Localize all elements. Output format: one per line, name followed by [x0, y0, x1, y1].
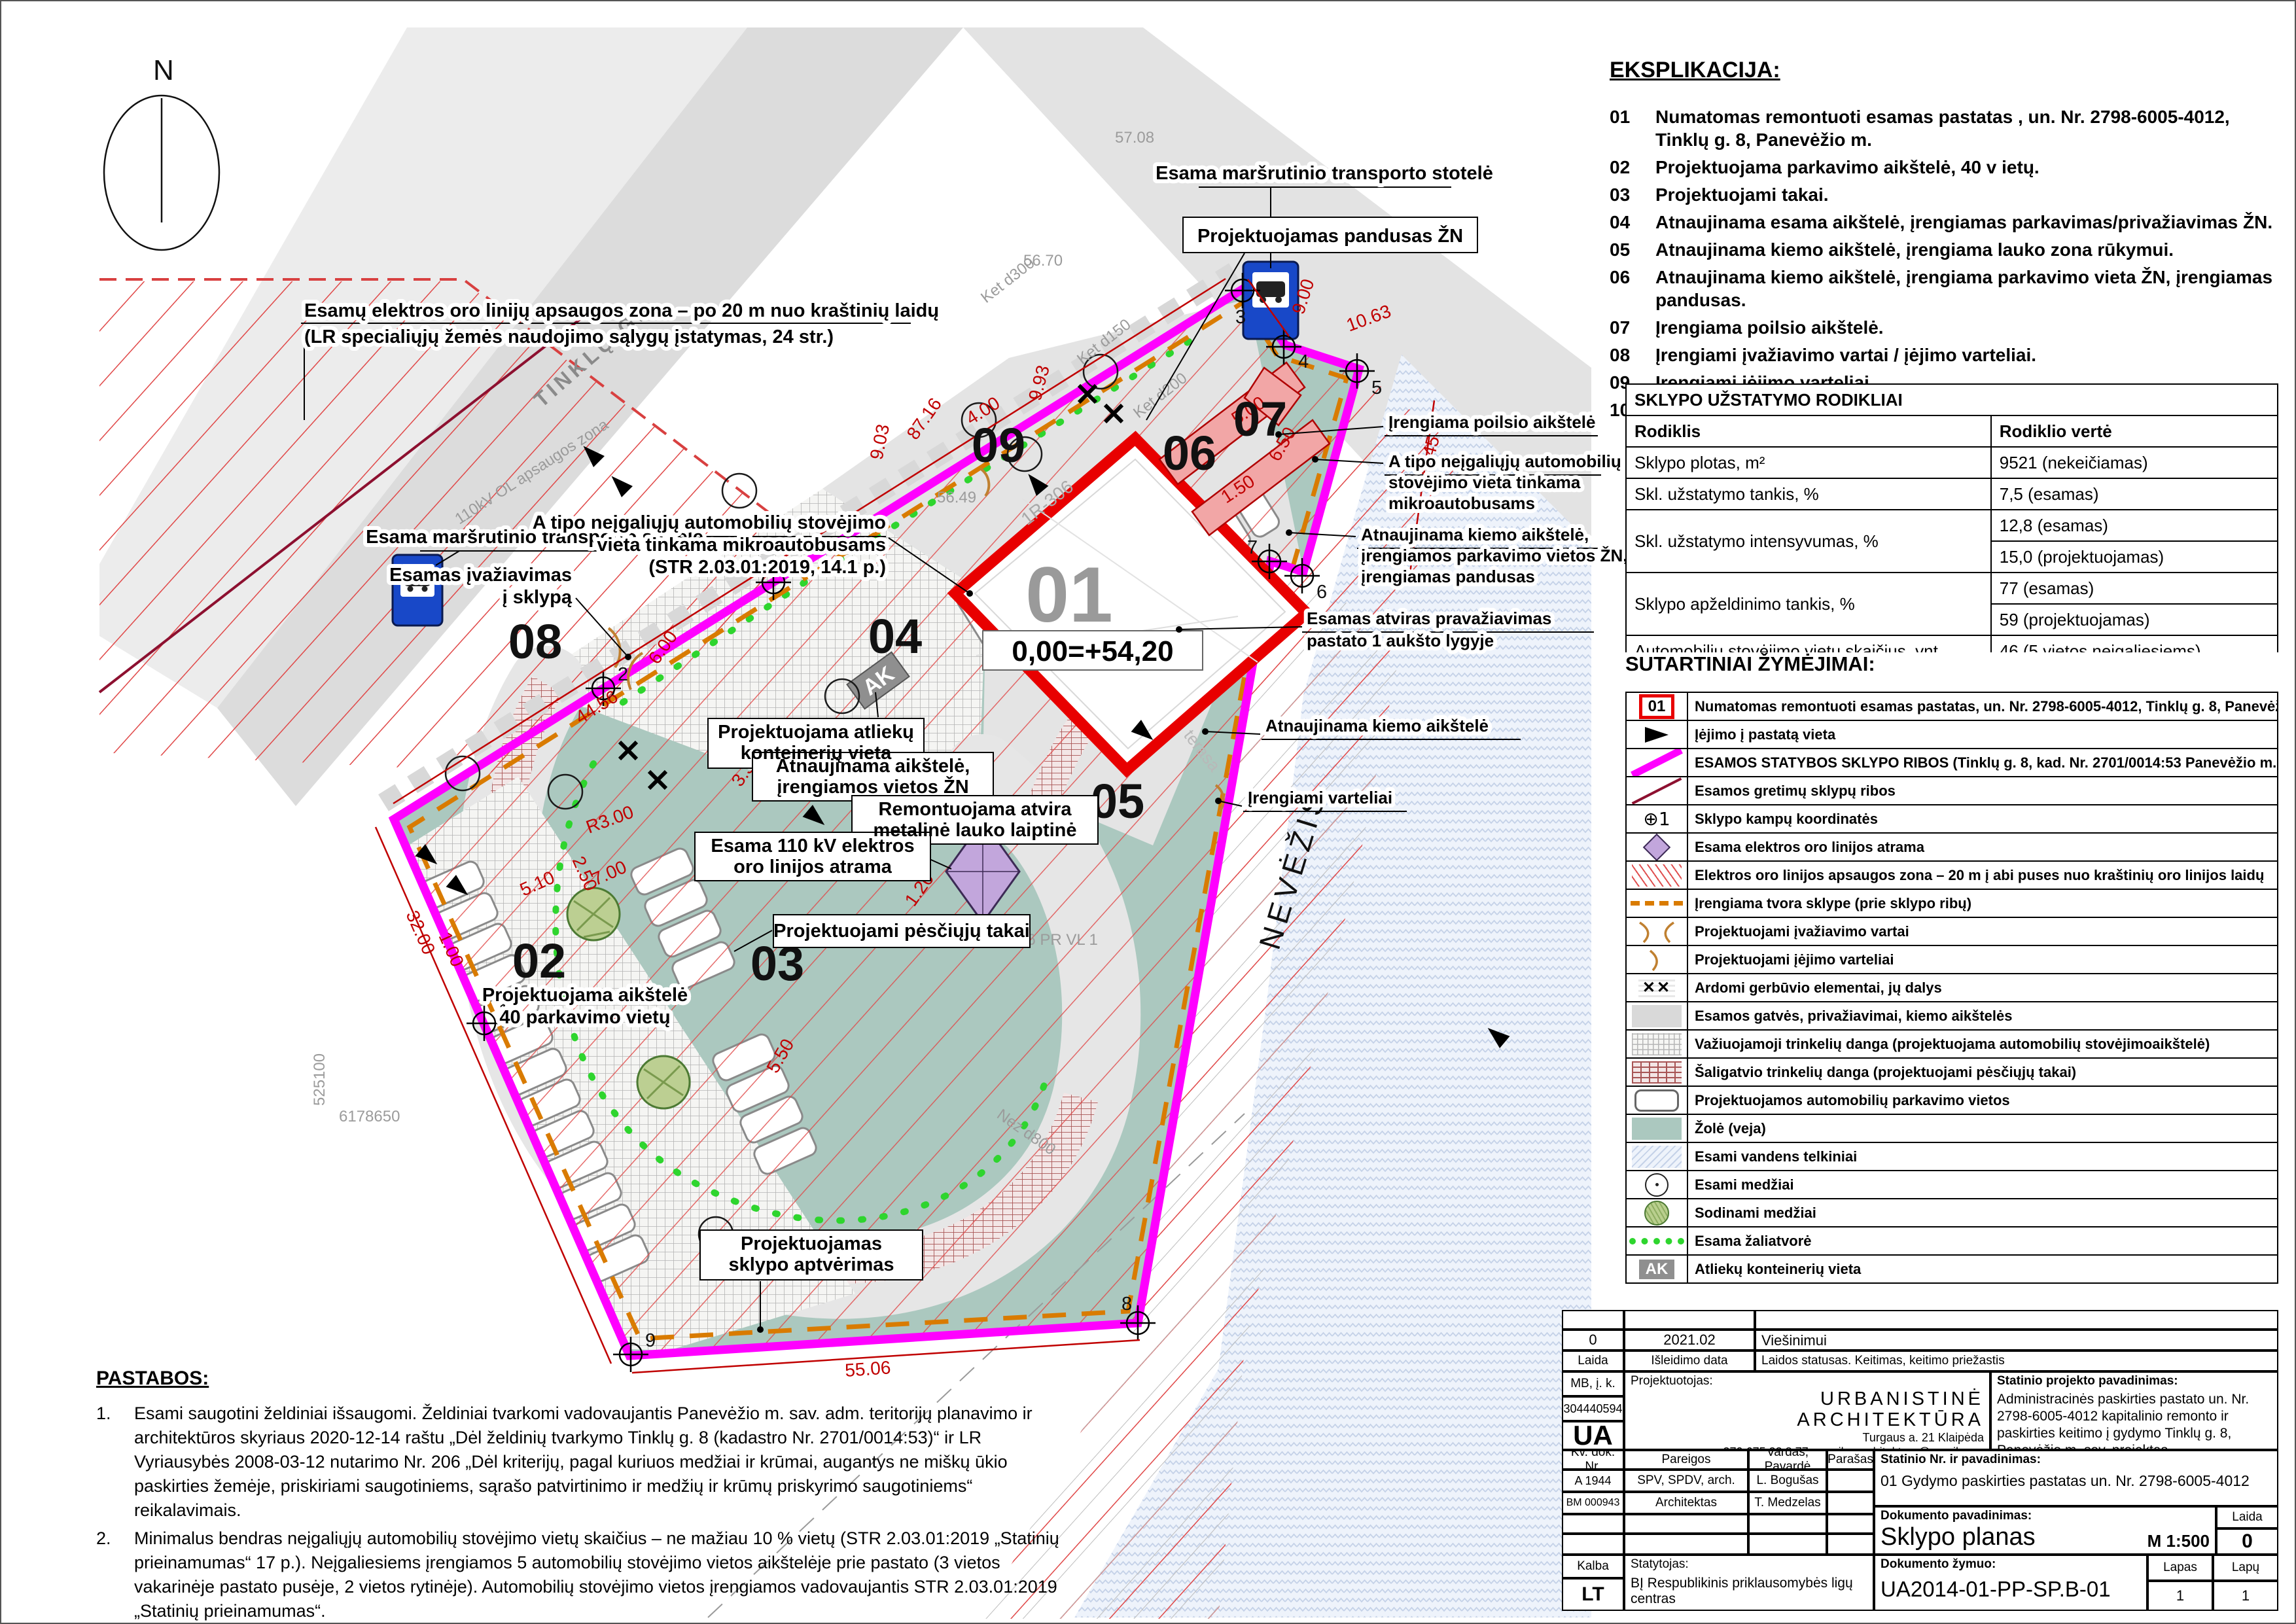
explication-item: 06Atnaujinama kiemo aikštelė, įrengiama … — [1610, 266, 2280, 311]
document-code-value: UA2014-01-PP-SP.B-01 — [1881, 1577, 2141, 1602]
legend-row: Projektuojamos automobilių parkavimo vie… — [1625, 1087, 2278, 1115]
legend-row: Įrengiama tvora sklype (prie sklypo ribų… — [1625, 890, 2278, 918]
empty-cell — [1624, 1514, 1748, 1534]
document-name-label: Dokumento pavadinimas: — [1881, 1509, 2210, 1523]
site-indicators-table: SKLYPO UŽSTATYMO RODIKLIAI RodiklisRodik… — [1625, 383, 2278, 667]
svg-text:Įrengiama poilsio aikštelė: Įrengiama poilsio aikštelė — [1388, 412, 1595, 432]
empty-cell — [1827, 1514, 1874, 1534]
empty-cell — [1624, 1534, 1748, 1555]
project-name-value: Administracinės paskirties pastato un. N… — [1997, 1391, 2272, 1450]
svg-text:Esama maršrutinio transporto s: Esama maršrutinio transporto stotelė — [1156, 163, 1493, 184]
company-address: Turgaus a. 21 Klaipėda — [1631, 1430, 1984, 1445]
legend-row: AKAtliekų konteinerių vieta — [1625, 1256, 2278, 1284]
legend-row: Elektros oro linijos apsaugos zona – 20 … — [1625, 862, 2278, 890]
svg-text:56.70: 56.70 — [1023, 252, 1063, 270]
rev-cell — [1624, 1310, 1755, 1330]
svg-text:07: 07 — [1233, 392, 1287, 446]
note-text: Esami saugotini želdiniai išsaugomi. Žel… — [134, 1402, 1061, 1523]
item-number: 01 — [1610, 105, 1645, 151]
legend-row: 01Numatomas remontuoti esamas pastatas, … — [1625, 692, 2278, 721]
svg-text:06: 06 — [1163, 426, 1216, 480]
structure-name-cell: Statinio Nr. ir pavadinimas: 01 Gydymo p… — [1874, 1450, 2278, 1506]
document-name-cell: Dokumento pavadinimas: Sklypo planas M 1… — [1874, 1506, 2216, 1555]
demolition-icon: ✕✕ — [1638, 978, 1675, 997]
revision-date-label: Išleidimo data — [1624, 1350, 1755, 1371]
item-number: 05 — [1610, 238, 1645, 261]
structure-name-label: Statinio Nr. ir pavadinimas: — [1881, 1453, 2272, 1467]
paver-driveway-icon — [1632, 1033, 1682, 1055]
svg-text:Projektuojama aikštelė: Projektuojama aikštelė — [482, 985, 688, 1006]
person-position: Architektas — [1624, 1492, 1748, 1514]
legend-label: ESAMOS STATYBOS SKLYPO RIBOS (Tinklų g. … — [1688, 754, 2277, 771]
col-header: Rodiklio vertė — [1991, 415, 2278, 447]
svg-text:Atnaujinama aikštelė,: Atnaujinama aikštelė, — [776, 756, 970, 777]
legend-label: Įėjimo į pastatą vieta — [1688, 726, 2277, 743]
svg-text:Atnaujinama kiemo aikštelė,: Atnaujinama kiemo aikštelė, — [1361, 525, 1589, 544]
svg-text:(LR specialiųjų žemės naudojim: (LR specialiųjų žemės naudojimo sąlygų į… — [304, 327, 834, 347]
revision-number: 0 — [1562, 1330, 1624, 1350]
person-doc-nr: BM 000943 — [1562, 1492, 1624, 1514]
indicator-label: Skl. užstatymo tankis, % — [1626, 478, 1991, 510]
waste-container-icon: AK — [1639, 1260, 1675, 1279]
svg-text:mikroautobusams: mikroautobusams — [1388, 493, 1535, 513]
svg-text:6178650: 6178650 — [339, 1108, 400, 1125]
item-number: 04 — [1610, 211, 1645, 234]
parking-spot-icon — [1634, 1089, 1679, 1112]
legend-row: Projektuojami įvažiavimo vartai — [1625, 918, 2278, 946]
item-text: Projektuojami takai. — [1655, 183, 1829, 206]
note-item: 1.Esami saugotini želdiniai išsaugomi. Ž… — [96, 1402, 1061, 1523]
legend-row: Projektuojami įėjimo varteliai — [1625, 946, 2278, 974]
company-name-2: ARCHITEKTŪRA — [1631, 1409, 1984, 1430]
language-value: LT — [1562, 1578, 1624, 1611]
rev-cell — [1755, 1310, 2278, 1330]
svg-text:Remontuojama atvira: Remontuojama atvira — [879, 799, 1072, 820]
legend-row: ESAMOS STATYBOS SKLYPO RIBOS (Tinklų g. … — [1625, 749, 2278, 777]
explication-item: 01Numatomas remontuoti esamas pastatas ,… — [1610, 105, 2280, 151]
item-text: Atnaujinama kiemo aikštelė, įrengiama pa… — [1655, 266, 2280, 311]
client-label: Statytojas: — [1631, 1557, 1867, 1572]
legend-row: Esami medžiai — [1625, 1171, 2278, 1199]
revision-col-label: Laida — [2216, 1506, 2278, 1528]
note-number: 2. — [96, 1527, 122, 1623]
svg-text:8: 8 — [1122, 1294, 1132, 1315]
building-01-icon: 01 — [1639, 694, 1675, 719]
col-header: Rodiklis — [1626, 415, 1991, 447]
indicator-value: 12,8 (esamas) — [1991, 510, 2278, 541]
project-name-cell: Statinio projekto pavadinimas: Administr… — [1990, 1371, 2278, 1450]
legend-label: Esami vandens telkiniai — [1688, 1148, 2277, 1165]
svg-text:40 parkavimo vietų: 40 parkavimo vietų — [499, 1007, 670, 1028]
notes-panel: PASTABOS: 1.Esami saugotini želdiniai iš… — [96, 1368, 1061, 1624]
item-number: 07 — [1610, 316, 1645, 339]
item-number: 02 — [1610, 156, 1645, 179]
building-number: 01 — [1025, 551, 1112, 639]
person-position: SPV, SPDV, arch. — [1624, 1470, 1748, 1492]
legend-label: Atliekų konteinerių vieta — [1688, 1261, 2277, 1278]
svg-text:vieta tinkama mikroautobusams: vieta tinkama mikroautobusams — [597, 535, 886, 556]
legend-row: Esami vandens telkiniai — [1625, 1143, 2278, 1171]
document-code-cell: Dokumento žymuo: UA2014-01-PP-SP.B-01 — [1874, 1555, 2147, 1611]
indicator-value: 59 (projektuojamas) — [1991, 604, 2278, 635]
explication-item: 02Projektuojama parkavimo aikštelė, 40 v… — [1610, 156, 2280, 179]
svg-text:56.49: 56.49 — [937, 489, 976, 506]
indicator-value: 77 (esamas) — [1991, 573, 2278, 604]
note-number: 1. — [96, 1402, 122, 1523]
project-name-label: Statinio projekto pavadinimas: — [1997, 1374, 2272, 1388]
revision-col-value: 0 — [2216, 1528, 2278, 1555]
note-item: 2.Minimalus bendras neįgaliųjų automobil… — [96, 1527, 1061, 1623]
designer-cell: Projektuotojas: URBANISTINĖ ARCHITEKTŪRA… — [1624, 1371, 1990, 1450]
drawing-sheet: 1R-306 2MG 3MG terasa 01 0,00=+54,20 AK … — [0, 0, 2296, 1624]
svg-text:į sklypą: į sklypą — [503, 587, 573, 608]
client-cell: Statytojas: BĮ Respublikinis priklausomy… — [1624, 1555, 1874, 1611]
item-text: Projektuojama parkavimo aikštelė, 40 v i… — [1655, 156, 2040, 179]
svg-text:sklypo aptvėrimas: sklypo aptvėrimas — [728, 1254, 894, 1275]
client-value: BĮ Respublikinis priklausomybės ligų cen… — [1631, 1576, 1867, 1607]
water-body-icon — [1632, 1146, 1682, 1168]
sheet-value: 1 — [2147, 1581, 2213, 1611]
legend-row: ✕✕Ardomi gerbūvio elementai, jų dalys — [1625, 974, 2278, 1002]
language-label: Kalba — [1562, 1555, 1624, 1578]
svg-text:Esamas atviras pravažiavimas: Esamas atviras pravažiavimas — [1307, 609, 1551, 628]
svg-text:5: 5 — [1371, 378, 1382, 398]
rev-cell — [1562, 1310, 1624, 1330]
revision-status-label: Laidos statusas. Keitimas, keitimo priež… — [1755, 1350, 2278, 1371]
legend-label: Ardomi gerbūvio elementai, jų dalys — [1688, 980, 2277, 997]
svg-text:oro linijos atrama: oro linijos atrama — [733, 856, 892, 877]
svg-text:įrengiamas pandusas: įrengiamas pandusas — [1361, 567, 1535, 586]
item-text: Numatomas remontuoti esamas pastatas , u… — [1655, 105, 2280, 151]
legend-row: Įėjimo į pastatą vieta — [1625, 721, 2278, 749]
legend-row: Sodinami medžiai — [1625, 1199, 2278, 1227]
company-phone: +370 675 33 8 77 e-mail: uarchitektura@g… — [1631, 1445, 1984, 1450]
doc-nr-header: Kv. dok. Nr. — [1562, 1450, 1624, 1470]
person-signature — [1827, 1492, 1874, 1514]
svg-text:Projektuojamas pandusas ŽN: Projektuojamas pandusas ŽN — [1197, 224, 1463, 247]
company-name-1: URBANISTINĖ — [1631, 1388, 1984, 1409]
explication-item: 08Įrengiami įvažiavimo vartai / įėjimo v… — [1610, 344, 2280, 366]
svg-text:02: 02 — [512, 934, 566, 988]
legend-label: Įrengiama tvora sklype (prie sklypo ribų… — [1688, 895, 2277, 912]
empty-cell — [1562, 1514, 1624, 1534]
svg-text:įrengiamos vietos ŽN: įrengiamos vietos ŽN — [777, 775, 968, 798]
building-level-label: 0,00=+54,20 — [1012, 635, 1173, 667]
legend-label: Sklypo kampų koordinatės — [1688, 811, 2277, 828]
item-text: Įrengiami įvažiavimo vartai / įėjimo var… — [1655, 344, 2036, 366]
svg-text:9: 9 — [645, 1330, 656, 1351]
document-code-label: Dokumento žymuo: — [1881, 1557, 2141, 1572]
svg-text:įrengiamos parkavimo vietos ŽN: įrengiamos parkavimo vietos ŽN, — [1361, 546, 1627, 565]
scale-value: M 1:500 — [2147, 1531, 2210, 1551]
main-gate-icon — [1636, 920, 1678, 944]
svg-text:04: 04 — [868, 609, 922, 663]
person-signature — [1827, 1470, 1874, 1492]
legend-label: Esamos gretimų sklypų ribos — [1688, 783, 2277, 800]
document-name-value: Sklypo planas — [1881, 1523, 2036, 1551]
legend-label: Važiuojamoji trinkelių danga (projektuoj… — [1688, 1036, 2277, 1053]
designer-label: Projektuotojas: — [1631, 1374, 1984, 1388]
revision-date: 2021.02 — [1624, 1330, 1755, 1350]
item-number: 08 — [1610, 344, 1645, 366]
legend-row: Esama žaliatvorė — [1625, 1227, 2278, 1256]
hedge-icon — [1629, 1238, 1684, 1244]
sidewalk-paver-icon — [1632, 1061, 1682, 1084]
company-code-value: 304440594 — [1562, 1396, 1624, 1421]
svg-text:6: 6 — [1316, 582, 1327, 603]
svg-text:09: 09 — [972, 418, 1025, 472]
empty-cell — [1748, 1534, 1827, 1555]
person-name: L. Bogušas — [1748, 1470, 1827, 1492]
sheets-total-value: 1 — [2213, 1581, 2278, 1611]
indicator-value: 9521 (nekeičiamas) — [1991, 447, 2278, 478]
svg-text:3: 3 — [1235, 307, 1246, 328]
legend-label: Esama elektros oro linijos atrama — [1688, 839, 2277, 856]
legend-label: Sodinami medžiai — [1688, 1205, 2277, 1222]
legend-row: Šaligatvio trinkelių danga (projektuojam… — [1625, 1059, 2278, 1087]
legend-panel: SUTARTINIAI ŽYMĖJIMAI: 01Numatomas remon… — [1625, 652, 2278, 1284]
svg-text:05: 05 — [1091, 774, 1144, 828]
svg-text:Atnaujinama kiemo aikštelė: Atnaujinama kiemo aikštelė — [1265, 716, 1489, 735]
position-header: Pareigos — [1624, 1450, 1748, 1470]
svg-text:(STR 2.03.01:2019, 14.1 p.): (STR 2.03.01:2019, 14.1 p.) — [648, 557, 886, 578]
revision-label: Laida — [1562, 1350, 1624, 1371]
svg-text:stovėjimo vieta tinkama: stovėjimo vieta tinkama — [1388, 472, 1581, 492]
structure-name-value: 01 Gydymo paskirties pastatas un. Nr. 27… — [1881, 1472, 2272, 1490]
legend-label: Projektuojamos automobilių parkavimo vie… — [1688, 1092, 2277, 1109]
company-code-label: MB, į. k. — [1562, 1371, 1624, 1396]
svg-text:Projektuojama atliekų: Projektuojama atliekų — [718, 722, 914, 743]
item-text: Atnaujinama kiemo aikštelė, įrengiama la… — [1655, 238, 2174, 261]
person-name: T. Medzelas — [1748, 1492, 1827, 1514]
legend-row: ⊕1Sklypo kampų koordinatės — [1625, 805, 2278, 834]
sheet-label: Lapas — [2147, 1555, 2213, 1581]
sheets-total-label: Lapų — [2213, 1555, 2278, 1581]
explication-item: 05Atnaujinama kiemo aikštelė, įrengiama … — [1610, 238, 2280, 261]
legend-label: Projektuojami įėjimo varteliai — [1688, 951, 2277, 968]
note-text: Minimalus bendras neįgaliųjų automobilių… — [134, 1527, 1061, 1623]
corner-coordinate-icon: ⊕1 — [1643, 808, 1670, 830]
legend-label: Esama žaliatvorė — [1688, 1233, 2277, 1250]
svg-text:A tipo neįgaliųjų automobilių: A tipo neįgaliųjų automobilių — [1388, 451, 1621, 471]
legend-row: Esamos gretimų sklypų ribos — [1625, 777, 2278, 805]
legend-row: Esama elektros oro linijos atrama — [1625, 834, 2278, 862]
explication-item: 03Projektuojami takai. — [1610, 183, 2280, 206]
name-header: Vardas, Pavardė — [1748, 1450, 1827, 1470]
item-text: Atnaujinama esama aikštelė, įrengiamas p… — [1655, 211, 2272, 234]
indicators-title: SKLYPO UŽSTATYMO RODIKLIAI — [1626, 384, 2278, 415]
legend-label: Esami medžiai — [1688, 1176, 2277, 1193]
legend-label: Elektros oro linijos apsaugos zona – 20 … — [1688, 867, 2277, 884]
title-block: 0 2021.02 Viešinimui Laida Išleidimo dat… — [1562, 1310, 2278, 1611]
item-number: 03 — [1610, 183, 1645, 206]
empty-cell — [1562, 1534, 1624, 1555]
empty-cell — [1827, 1534, 1874, 1555]
protection-zone-icon — [1632, 864, 1682, 887]
svg-text:A tipo neįgaliųjų automobilių: A tipo neįgaliųjų automobilių stovėjimo — [533, 512, 886, 533]
legend-label: Esamos gatvės, privažiavimai, kiemo aikš… — [1688, 1008, 2277, 1025]
legend-row: Esamos gatvės, privažiavimai, kiemo aikš… — [1625, 1002, 2278, 1031]
existing-street-icon — [1632, 1005, 1682, 1027]
indicator-label: Sklypo plotas, m² — [1626, 447, 1991, 478]
notes-title: PASTABOS: — [96, 1368, 1061, 1390]
svg-text:57.08: 57.08 — [1115, 129, 1154, 147]
explication-item: 04Atnaujinama esama aikštelė, įrengiamas… — [1610, 211, 2280, 234]
legend-label: Projektuojami įvažiavimo vartai — [1688, 923, 2277, 940]
legend-label: Numatomas remontuoti esamas pastatas, un… — [1688, 698, 2277, 715]
legend-label: Šaligatvio trinkelių danga (projektuojam… — [1688, 1064, 2277, 1081]
svg-text:2: 2 — [618, 664, 628, 685]
legend-title: SUTARTINIAI ŽYMĖJIMAI: — [1625, 652, 2278, 676]
indicator-value: 7,5 (esamas) — [1991, 478, 2278, 510]
indicator-label: Sklypo apželdinimo tankis, % — [1626, 573, 1991, 635]
svg-text:Projektuojami pėsčiųjų takai: Projektuojami pėsčiųjų takai — [773, 921, 1030, 942]
revision-status: Viešinimui — [1755, 1330, 2278, 1350]
explication-title: EKSPLIKACIJA: — [1610, 58, 2280, 83]
legend-row: Važiuojamoji trinkelių danga (projektuoj… — [1625, 1031, 2278, 1059]
svg-text:Esama 110 kV elektros: Esama 110 kV elektros — [711, 836, 914, 856]
entrance-arrow-icon — [1645, 727, 1669, 743]
svg-text:4: 4 — [1298, 351, 1309, 372]
existing-tree-icon — [1645, 1173, 1669, 1197]
svg-text:N: N — [153, 54, 174, 86]
item-text: Įrengiama poilsio aikštelė. — [1655, 316, 1884, 339]
legend-label: Žolė (veja) — [1688, 1120, 2277, 1137]
svg-text:pastato 1 aukšto lygyje: pastato 1 aukšto lygyje — [1307, 631, 1494, 650]
company-logo: UA — [1562, 1421, 1624, 1450]
indicator-label: Skl. užstatymo intensyvumas, % — [1626, 510, 1991, 573]
svg-text:08: 08 — [508, 614, 562, 669]
site-boundary-icon — [1631, 749, 1683, 776]
parcel-boundary-icon — [1632, 777, 1682, 804]
svg-text:Projektuojamas: Projektuojamas — [741, 1233, 882, 1254]
planted-tree-icon — [1644, 1201, 1669, 1226]
grass-icon — [1632, 1118, 1682, 1140]
svg-text:Esamas įvažiavimas: Esamas įvažiavimas — [389, 565, 572, 586]
bus-stop-icon — [1243, 262, 1298, 339]
fence-line-icon — [1631, 901, 1683, 906]
signature-header: Parašas — [1827, 1450, 1874, 1470]
empty-cell — [1748, 1514, 1827, 1534]
small-gate-icon — [1644, 948, 1670, 972]
power-pylon-icon — [1643, 834, 1670, 860]
svg-text:Įrengiami varteliai: Įrengiami varteliai — [1248, 788, 1392, 807]
svg-text:Esamų elektros oro linijų apsa: Esamų elektros oro linijų apsaugos zona … — [304, 300, 939, 321]
svg-text:525100: 525100 — [311, 1053, 328, 1106]
explication-item: 07Įrengiama poilsio aikštelė. — [1610, 316, 2280, 339]
svg-text:7: 7 — [1247, 537, 1258, 558]
person-doc-nr: A 1944 — [1562, 1470, 1624, 1492]
item-number: 06 — [1610, 266, 1645, 311]
indicator-value: 15,0 (projektuojamas) — [1991, 541, 2278, 573]
legend-row: Žolė (veja) — [1625, 1115, 2278, 1143]
